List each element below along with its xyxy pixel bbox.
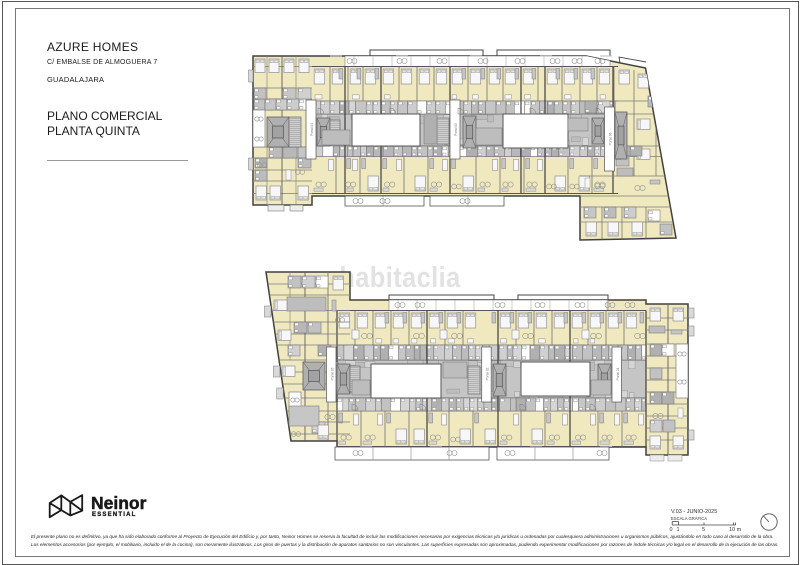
svg-text:Portal 04: Portal 04 <box>310 123 314 136</box>
svg-text:habitaclia: habitaclia <box>339 260 461 293</box>
svg-text:Portal 05: Portal 05 <box>454 123 458 136</box>
svg-text:Portal 06: Portal 06 <box>609 132 613 145</box>
svg-text:Portal 02: Portal 02 <box>486 367 490 380</box>
svg-text:Portal 03: Portal 03 <box>331 367 335 380</box>
svg-text:Portal 01: Portal 01 <box>616 367 620 380</box>
